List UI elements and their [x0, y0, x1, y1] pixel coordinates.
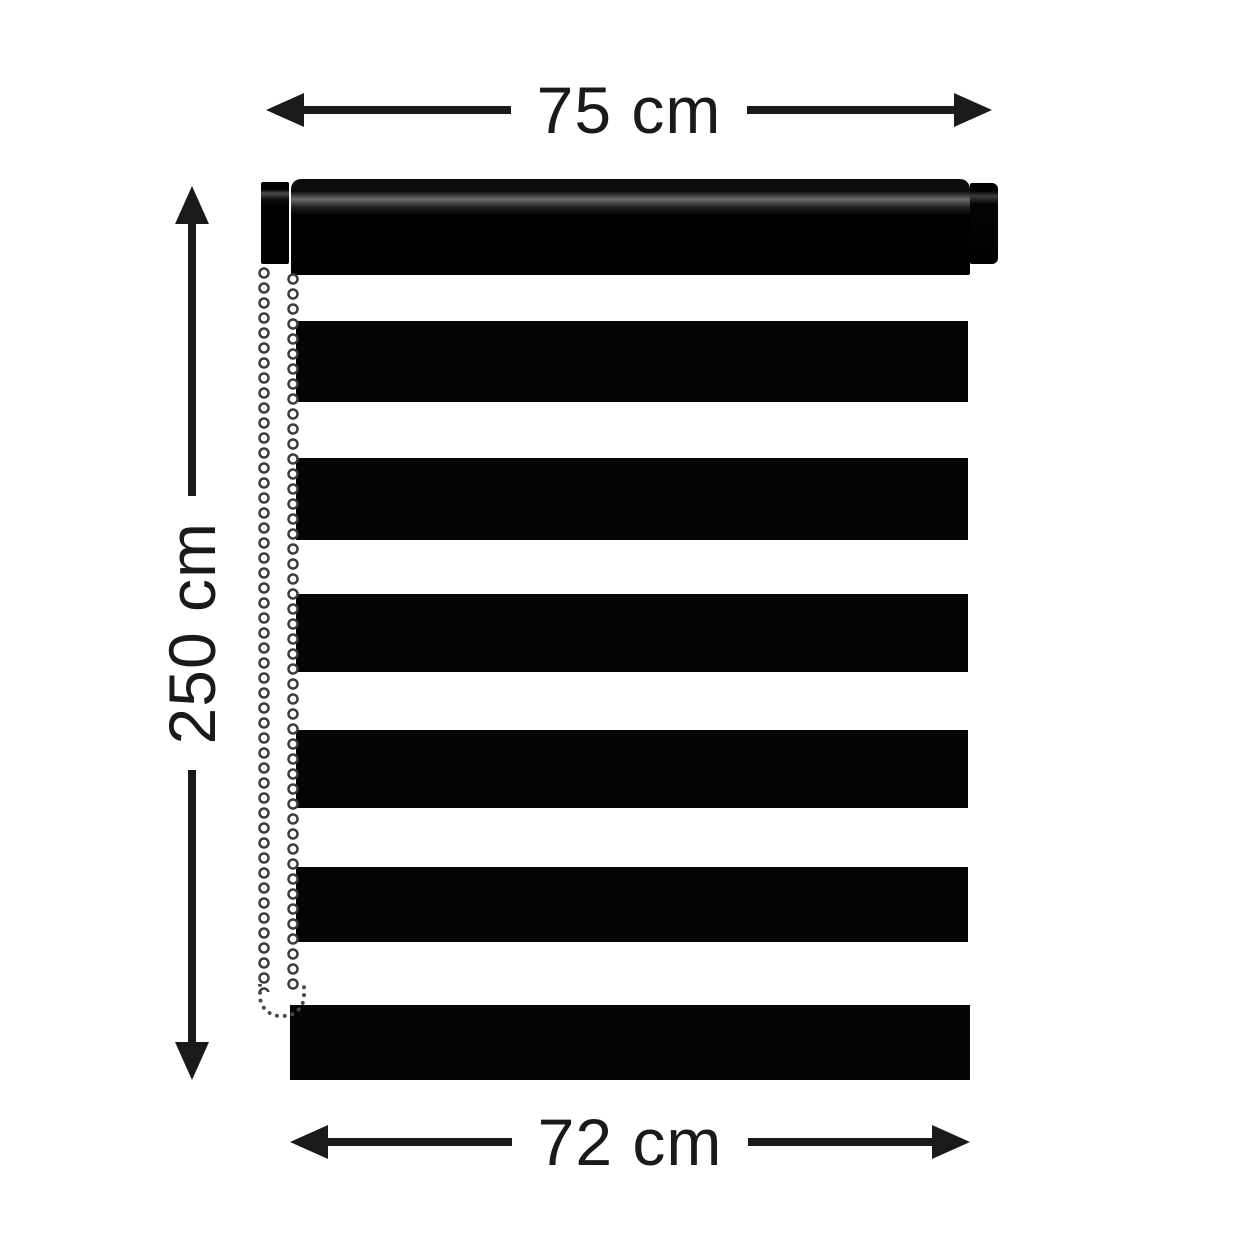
arrow-left-icon — [266, 93, 304, 127]
left-height-label: 250 cm — [159, 496, 225, 770]
top-width-dimension: 75 cm — [266, 76, 992, 144]
end-cap — [970, 183, 998, 264]
arrow-left-icon — [290, 1125, 328, 1159]
dimension-line — [188, 224, 196, 496]
arrow-up-icon — [175, 186, 209, 224]
arrow-right-icon — [954, 93, 992, 127]
arrow-down-icon — [175, 1042, 209, 1080]
fabric-stripe — [296, 594, 968, 672]
fabric-stripe-bottom — [290, 1005, 970, 1080]
fabric-stripe — [296, 458, 968, 540]
dimension-line — [748, 1138, 932, 1146]
roller-tube — [291, 179, 970, 275]
dimension-line — [188, 770, 196, 1042]
mounting-bracket — [261, 182, 289, 264]
top-width-label: 75 cm — [511, 77, 748, 143]
fabric-stripe — [296, 321, 968, 402]
dimension-line — [304, 106, 511, 114]
bottom-width-dimension: 72 cm — [290, 1108, 970, 1176]
dimension-line — [747, 106, 954, 114]
roller-blind-dimension-diagram: 75 cm 250 cm 72 cm — [0, 0, 1240, 1240]
bead-chain-back-strand — [286, 272, 300, 992]
arrow-right-icon — [932, 1125, 970, 1159]
bottom-width-label: 72 cm — [512, 1109, 749, 1175]
fabric-stripe — [296, 730, 968, 808]
bead-chain-front-strand — [257, 266, 271, 992]
dimension-line — [328, 1138, 512, 1146]
left-height-dimension: 250 cm — [156, 186, 228, 1080]
fabric-stripe — [296, 867, 968, 942]
